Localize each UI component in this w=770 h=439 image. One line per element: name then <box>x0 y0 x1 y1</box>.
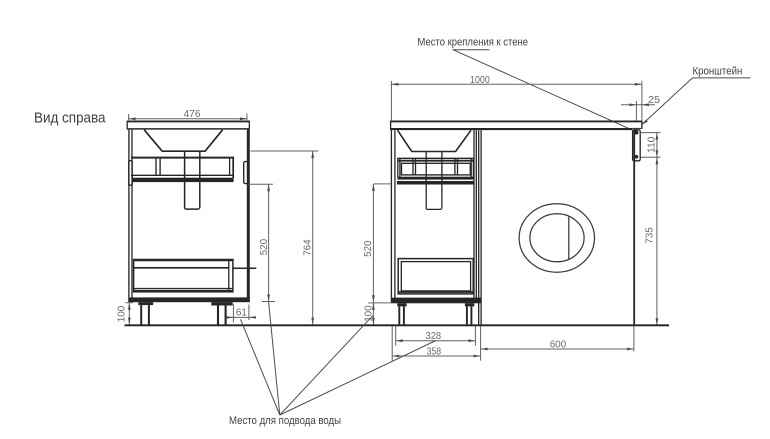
svg-text:520: 520 <box>259 238 270 255</box>
svg-text:476: 476 <box>184 109 201 120</box>
svg-text:1000: 1000 <box>470 75 490 86</box>
svg-text:735: 735 <box>645 227 656 244</box>
svg-text:Вид справа: Вид справа <box>34 109 106 126</box>
svg-text:358: 358 <box>427 346 442 357</box>
svg-text:Кронштейн: Кронштейн <box>693 66 743 78</box>
svg-text:100: 100 <box>116 305 127 322</box>
svg-text:25: 25 <box>648 95 660 106</box>
svg-text:110: 110 <box>647 136 658 153</box>
svg-text:600: 600 <box>550 339 567 350</box>
svg-text:Место крепления к стене: Место крепления к стене <box>418 37 529 49</box>
svg-text:Место для подвода воды: Место для подвода воды <box>229 415 341 427</box>
svg-text:764: 764 <box>303 239 314 256</box>
svg-text:328: 328 <box>426 331 442 342</box>
svg-text:61: 61 <box>236 308 247 319</box>
svg-text:520: 520 <box>363 240 374 257</box>
